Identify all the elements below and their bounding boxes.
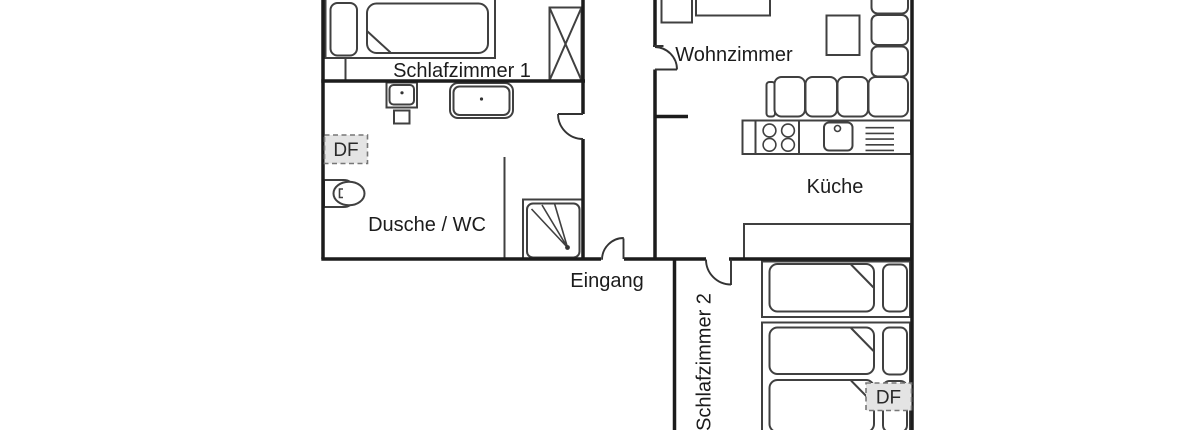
sofa-section xyxy=(872,15,909,45)
sofa-section xyxy=(838,77,869,117)
chair xyxy=(662,0,693,23)
room-label-bedroom1: Schlafzimmer 1 xyxy=(393,60,531,82)
bathroom-door-swing xyxy=(558,114,583,139)
sideboard xyxy=(744,224,911,259)
washbasin-inner xyxy=(390,85,415,105)
bathtub-inner xyxy=(454,87,510,116)
room-label-kitchen: Küche xyxy=(807,176,864,198)
room-label-bedroom2: Schlafzimmer 2 xyxy=(694,293,716,430)
entrance-door-swing xyxy=(602,238,624,260)
dining-table xyxy=(696,0,770,16)
pillow xyxy=(331,3,358,56)
room-label-living-room: Wohnzimmer xyxy=(675,44,793,66)
kitchen-sink xyxy=(824,123,853,151)
floor-plan: DF DF Schlafzimmer 1 Wohnzimmer Küche Du… xyxy=(0,0,1200,430)
mattress xyxy=(367,4,488,54)
toilet-bowl xyxy=(334,182,365,206)
sofa-section xyxy=(872,0,909,14)
sofa-section xyxy=(775,77,806,117)
sofa-corner-section xyxy=(869,77,909,117)
stool xyxy=(394,111,410,124)
bathtub-drain xyxy=(480,97,483,100)
living-room-door-swing xyxy=(653,46,677,70)
sofa-section xyxy=(806,77,838,117)
roof-window-label: DF xyxy=(333,140,358,161)
washbasin-drain xyxy=(400,91,403,94)
pillow xyxy=(883,328,907,375)
sofa-section xyxy=(872,47,909,77)
bedroom2-door-swing xyxy=(706,260,731,286)
roof-window-label: DF xyxy=(876,388,901,409)
side-table xyxy=(827,16,860,56)
floor-plan-drawing: DF DF Schlafzimmer 1 Wohnzimmer Küche Du… xyxy=(0,0,1200,430)
room-label-entrance: Eingang xyxy=(570,270,643,292)
shower-drain xyxy=(565,245,570,250)
room-label-bathroom: Dusche / WC xyxy=(368,214,486,236)
pillow xyxy=(883,265,907,312)
